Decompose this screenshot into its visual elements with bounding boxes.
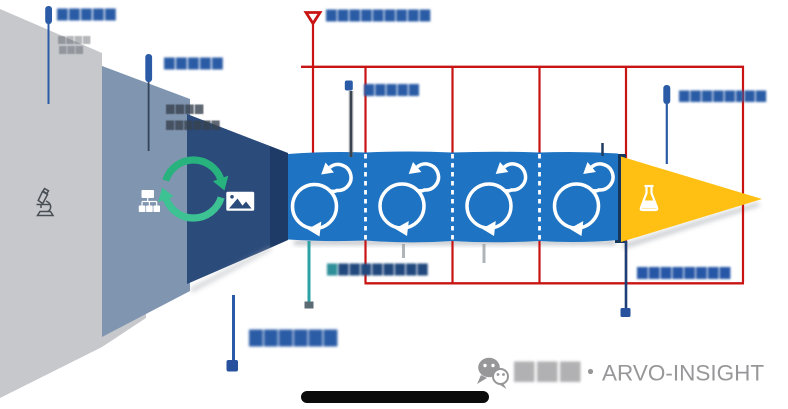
svg-text:ARVO-INSIGHT: ARVO-INSIGHT [602, 361, 764, 386]
